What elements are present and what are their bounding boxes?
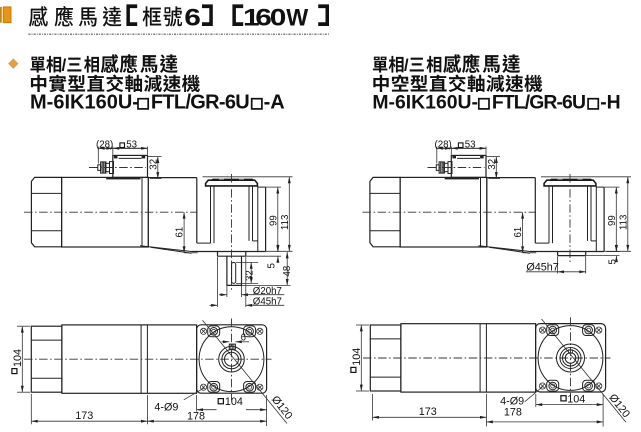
svg-text:104: 104 <box>567 393 585 405</box>
svg-text:Ø45h7: Ø45h7 <box>526 261 558 273</box>
svg-text:/: / <box>404 57 409 75</box>
svg-text:5: 5 <box>607 259 618 264</box>
svg-text:6: 6 <box>241 332 246 343</box>
svg-text:Ø20h7: Ø20h7 <box>253 286 282 297</box>
svg-text:32: 32 <box>245 270 256 281</box>
svg-text:4-Ø9: 4-Ø9 <box>500 395 524 407</box>
svg-text:178: 178 <box>504 406 522 418</box>
svg-text:173: 173 <box>419 406 437 418</box>
svg-text:6: 6 <box>184 3 201 31</box>
svg-text:5: 5 <box>267 263 278 268</box>
svg-text:Ø45h7: Ø45h7 <box>253 297 282 308</box>
svg-text:FTL/GR-6U: FTL/GR-6U <box>151 91 249 113</box>
svg-text:FTL/GR-6U: FTL/GR-6U <box>492 91 585 113</box>
svg-text:48: 48 <box>282 266 293 277</box>
svg-text:-H: -H <box>600 91 620 113</box>
svg-text:/: / <box>62 57 67 75</box>
svg-text:M-6IK160U-: M-6IK160U- <box>372 91 478 113</box>
svg-text:M-6IK160U-: M-6IK160U- <box>30 91 139 113</box>
svg-text:-A: -A <box>264 91 285 113</box>
svg-text:W: W <box>286 4 308 32</box>
svg-text:0: 0 <box>270 3 287 31</box>
